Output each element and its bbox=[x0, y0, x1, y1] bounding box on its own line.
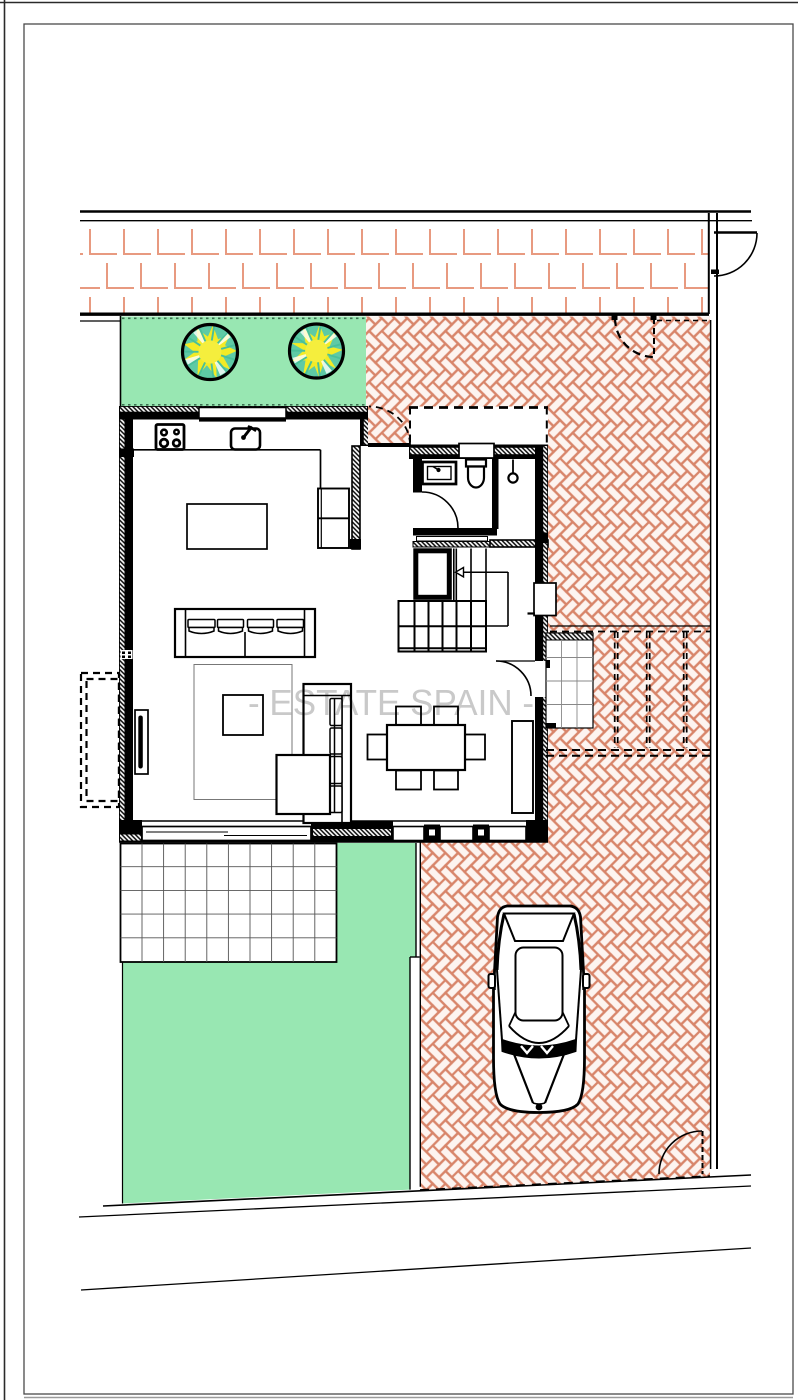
svg-text:- ESTATE SPAIN -: - ESTATE SPAIN - bbox=[248, 682, 534, 723]
